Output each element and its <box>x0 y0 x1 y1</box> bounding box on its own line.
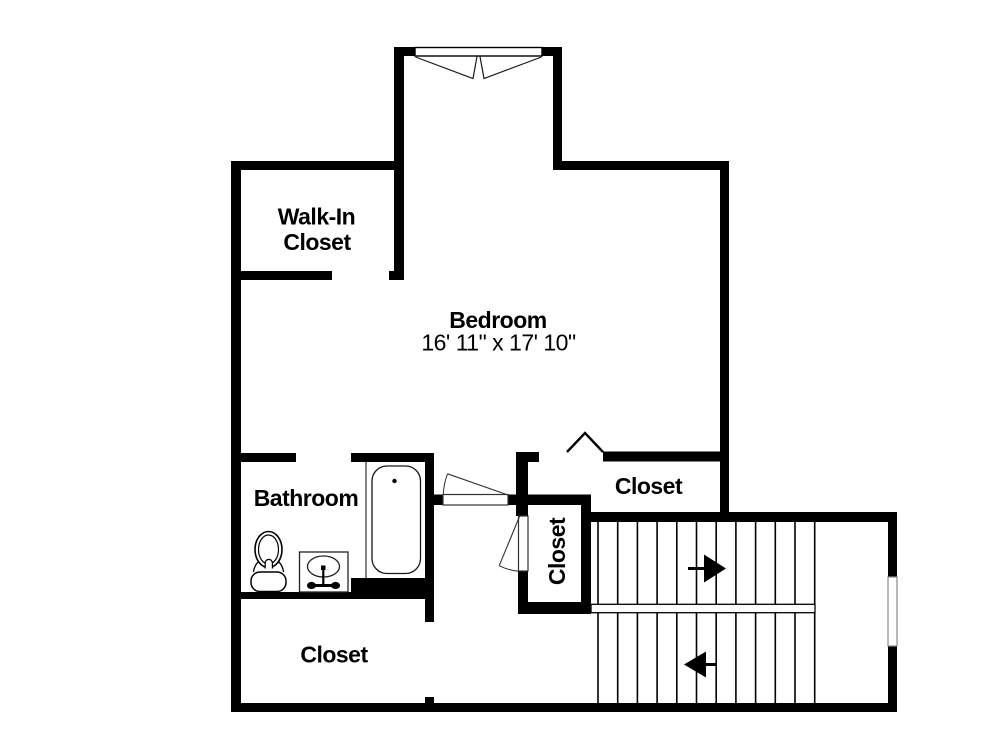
svg-text:Walk-In: Walk-In <box>278 204 355 230</box>
svg-text:Closet: Closet <box>544 517 570 585</box>
svg-text:Closet: Closet <box>300 642 368 668</box>
svg-text:Closet: Closet <box>615 473 683 499</box>
svg-text:Bathroom: Bathroom <box>254 485 359 511</box>
svg-text:16' 11" x 17' 10": 16' 11" x 17' 10" <box>421 330 576 356</box>
svg-text:Closet: Closet <box>283 229 351 255</box>
